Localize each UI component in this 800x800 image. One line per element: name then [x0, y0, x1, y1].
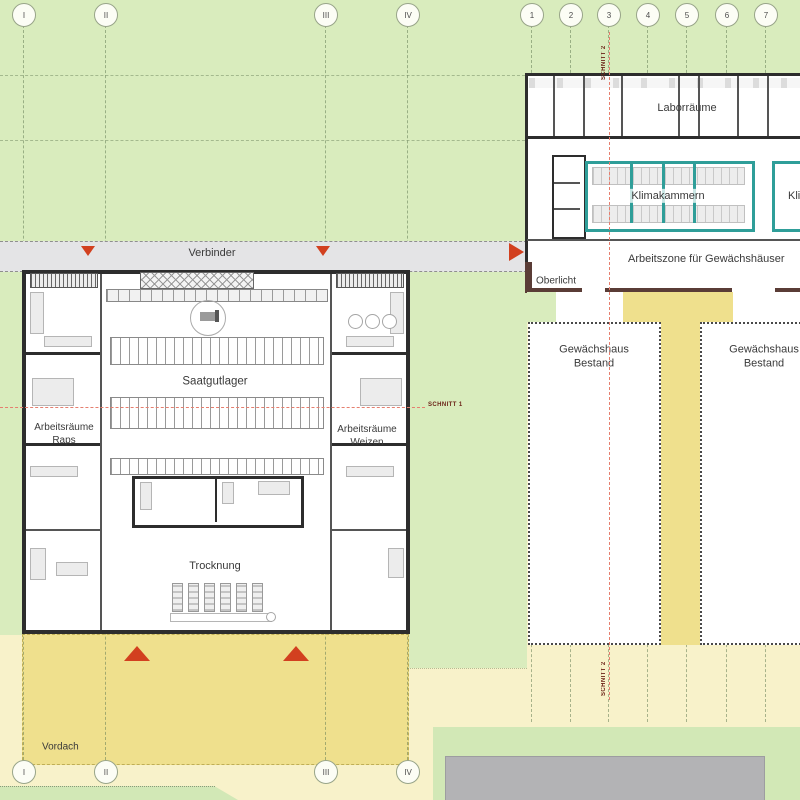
wc-stack — [552, 155, 586, 239]
raps-line2: Raps — [34, 434, 93, 447]
greenhouse-forecourt-east — [733, 292, 800, 322]
inner-rooms-divider — [215, 479, 217, 522]
raps-furniture-6 — [56, 562, 88, 576]
arbeitszone-label: Arbeitszone für Gewächshäuser — [628, 253, 785, 265]
corridor-yellow-between — [661, 322, 700, 645]
laborraeume-label: Laborräume — [657, 101, 716, 115]
grid-marker-top-IV: IV — [396, 3, 420, 27]
klimakammern-west-shelf-bottom — [592, 205, 745, 223]
grid-marker-top-5: 5 — [675, 3, 699, 27]
lab-fixtures-strip — [529, 78, 800, 88]
raps-furniture-5 — [30, 548, 46, 580]
right-building-left-wall — [525, 73, 528, 264]
paving-gray-area — [445, 756, 765, 800]
grid-marker-top-7: 7 — [754, 3, 778, 27]
loading-dock-strip — [106, 289, 328, 302]
klimakammern-west-label: Klimakammern — [629, 189, 706, 203]
lab-band-bottom-wall — [525, 136, 800, 139]
weizen-shelf-hatch — [336, 273, 404, 288]
weizen-round-table-1 — [348, 314, 363, 329]
storage-rack-1 — [110, 337, 324, 365]
grid-marker-top-II: II — [94, 3, 118, 27]
arbeitsraeume-raps-label: Arbeitsräume Raps — [34, 421, 93, 447]
schnitt2-line — [609, 32, 610, 700]
band2-bottom-wall — [527, 239, 800, 241]
canopy-arrow-east-icon — [283, 646, 309, 661]
entrance-crosshatch — [140, 272, 254, 289]
weizen-furniture-5 — [388, 548, 404, 578]
dryer-unit-3 — [204, 583, 215, 612]
klimakammern-west-shelf-top — [592, 167, 745, 185]
inner-room-furniture-2 — [222, 482, 234, 504]
raps-wall-1 — [26, 352, 100, 355]
conveyor — [170, 613, 272, 622]
raps-shelf-hatch — [30, 273, 98, 288]
verbinder-label: Verbinder — [188, 246, 235, 260]
raps-wall-3 — [26, 529, 100, 531]
schnitt2-label-bottom: SCHNITT 2 — [601, 652, 607, 696]
wc-divider-2 — [554, 208, 580, 210]
grid-marker-top-6: 6 — [715, 3, 739, 27]
greenhouse-forecourt-green — [527, 292, 556, 322]
klimakammern-east-label: Klimakammern — [788, 190, 800, 202]
corridor-yellow-top — [623, 292, 733, 322]
connector-arrow-icon — [509, 243, 524, 261]
green-wedge-bottom-left — [0, 786, 238, 800]
dryer-unit-4 — [220, 583, 231, 612]
greenhouse-east-label: Gewächshaus Bestand — [729, 343, 799, 372]
grid-marker-top-4: 4 — [636, 3, 660, 27]
canopy-arrow-west-icon — [124, 646, 150, 661]
dryer-unit-2 — [188, 583, 199, 612]
storage-rack-3 — [110, 458, 324, 475]
lab-partition-7 — [767, 76, 769, 136]
arbeitsraeume-weizen-label: Arbeitsräume Weizen — [337, 423, 396, 449]
schnitt2-label-top: SCHNITT 2 — [601, 36, 607, 80]
grid-marker-top-III: III — [314, 3, 338, 27]
left-hall-wall-west — [100, 274, 102, 630]
green-wedge-dotted-edge — [0, 786, 215, 787]
canopy-vordach-area — [22, 634, 409, 765]
inner-room-furniture-1 — [140, 482, 152, 510]
raps-furniture-4 — [30, 466, 78, 477]
weizen-wall-3 — [332, 529, 406, 531]
wc-divider-1 — [554, 182, 580, 184]
lab-partition-1 — [553, 76, 555, 136]
field-yellow-left-sliver — [0, 635, 22, 763]
grid-hline-b — [0, 140, 530, 141]
weizen-round-table-3 — [382, 314, 397, 329]
schnitt1-label: SCHNITT 1 — [428, 402, 463, 408]
conveyor-wheel — [266, 612, 276, 622]
grid-marker-top-3: 3 — [597, 3, 621, 27]
grid-hline-c — [407, 668, 527, 669]
greenhouse-east-line1: Gewächshaus — [729, 343, 799, 357]
dryer-unit-1 — [172, 583, 183, 612]
right-building-top-wall — [525, 73, 800, 76]
raps-furniture-3 — [32, 378, 74, 406]
raps-furniture-2 — [44, 336, 92, 347]
weizen-line2: Weizen — [337, 436, 396, 449]
lab-partition-6 — [737, 76, 739, 136]
storage-rack-2 — [110, 397, 324, 429]
oberlicht-label: Oberlicht — [536, 276, 576, 287]
weizen-furniture-2 — [346, 336, 394, 347]
raps-line1: Arbeitsräume — [34, 421, 93, 434]
lab-partition-3 — [621, 76, 623, 136]
dryer-unit-5 — [236, 583, 247, 612]
raps-furniture-1 — [30, 292, 44, 334]
site-plan: Verbinder Saatgutlager Ar — [0, 0, 800, 800]
weizen-wall-1 — [332, 352, 406, 355]
entrance-arrow-west-icon — [81, 246, 95, 256]
trocknung-label: Trocknung — [189, 559, 241, 573]
lab-partition-2 — [583, 76, 585, 136]
greenhouse-west-line1: Gewächshaus — [559, 343, 629, 357]
saatgutlager-label: Saatgutlager — [182, 375, 247, 390]
forklift-icon — [200, 312, 216, 321]
vordach-label: Vordach — [42, 742, 79, 753]
greenhouse-west-line2: Bestand — [559, 357, 629, 371]
left-hall-wall-east — [330, 274, 332, 630]
weizen-furniture-4 — [346, 466, 394, 477]
schnitt1-line — [0, 407, 425, 408]
weizen-line1: Arbeitsräume — [337, 423, 396, 436]
grid-marker-bottom-IV: IV — [396, 760, 420, 784]
forklift-mast — [215, 310, 219, 322]
grid-hline-a — [0, 75, 530, 76]
greenhouse-west-label: Gewächshaus Bestand — [559, 343, 629, 372]
entrance-arrow-mid-icon — [316, 246, 330, 256]
greenhouse-east-line2: Bestand — [729, 357, 799, 371]
grid-marker-top-1: 1 — [520, 3, 544, 27]
grid-marker-bottom-II: II — [94, 760, 118, 784]
dryer-unit-6 — [252, 583, 263, 612]
grid-marker-bottom-III: III — [314, 760, 338, 784]
grid-marker-top-I: I — [12, 3, 36, 27]
weizen-round-table-2 — [365, 314, 380, 329]
grid-marker-top-2: 2 — [559, 3, 583, 27]
grid-marker-bottom-I: I — [12, 760, 36, 784]
inner-room-furniture-3 — [258, 481, 290, 495]
verbinder-corridor — [0, 241, 527, 272]
weizen-furniture-3 — [360, 378, 402, 406]
